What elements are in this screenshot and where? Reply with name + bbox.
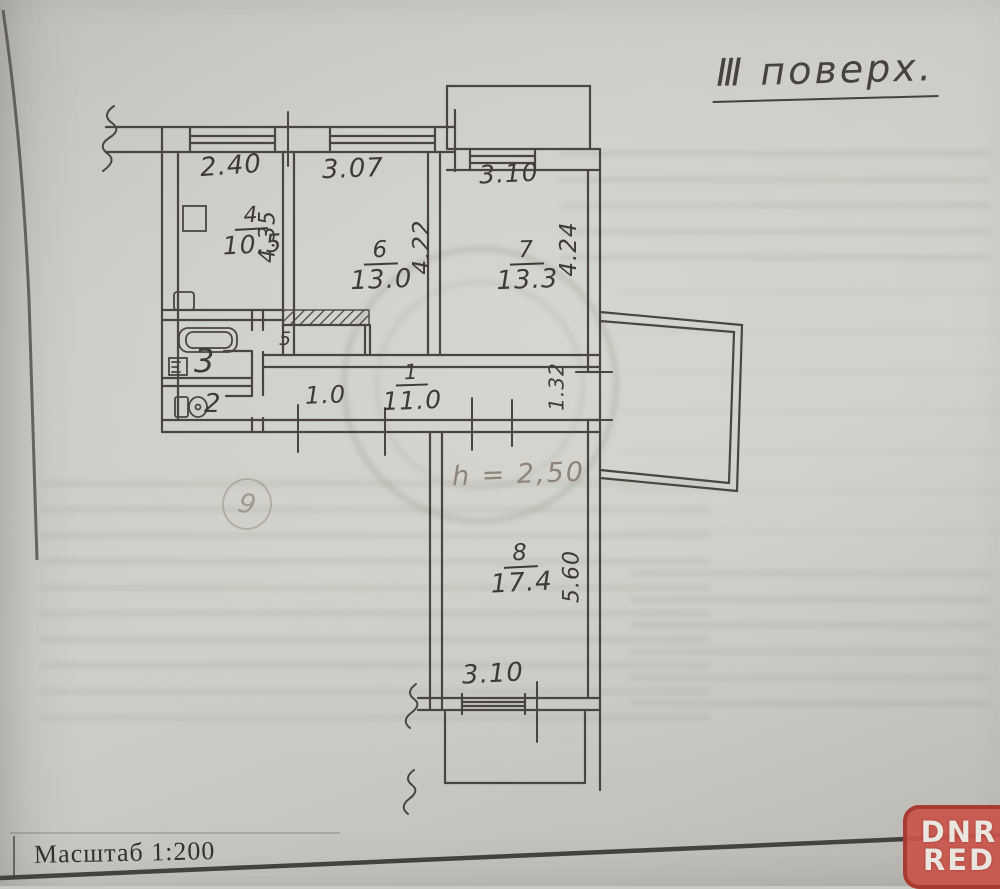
watermark-line2: RED xyxy=(923,847,995,875)
room-living7-label: 7 13.3 xyxy=(495,237,559,296)
room-living6-area: 13.0 xyxy=(350,264,413,295)
height-note: h = 2,50 xyxy=(452,459,586,492)
room-hall-number: 1 xyxy=(395,360,428,386)
room-8-number: 8 xyxy=(503,540,538,569)
window-kitchen xyxy=(190,127,275,152)
dim-kitchen-depth: 4.35 xyxy=(256,207,279,267)
upper-balcony xyxy=(447,86,590,149)
dim-room8-width: 3.10 xyxy=(461,659,524,689)
wall-break-mark xyxy=(103,106,117,171)
dim-balcony-opening: 1.32 xyxy=(547,358,568,416)
room-8-area: 17.4 xyxy=(490,567,553,599)
wall-break-mark-2 xyxy=(406,684,418,728)
dimension-ticks xyxy=(288,112,612,742)
dim-room8-depth: 5.60 xyxy=(560,547,583,607)
dim-living7-depth: 4.24 xyxy=(557,218,581,280)
dim-kitchen-width: 2.40 xyxy=(199,151,263,183)
room-8-label: 8 17.4 xyxy=(489,539,554,599)
floor-plan-drawing xyxy=(0,0,1000,886)
toilet-icon xyxy=(175,397,207,417)
plan-walls xyxy=(103,86,742,814)
wall-break-mark-3 xyxy=(404,770,416,814)
room-living6-label: 6 13.0 xyxy=(349,237,413,296)
scale-label: Масштаб 1:200 xyxy=(34,836,216,870)
room-living6-number: 6 xyxy=(363,237,398,265)
room-bathroom-number: 3 xyxy=(194,345,215,379)
room-hall-area: 11.0 xyxy=(382,385,443,415)
dim-living7-width: 3.10 xyxy=(478,159,539,188)
room-living7-number: 7 xyxy=(509,237,544,265)
page-curl-line xyxy=(3,10,37,560)
room-living7-area: 13.3 xyxy=(496,264,559,295)
room-wc-number: 2 xyxy=(204,391,222,418)
room-closet-number: 5 xyxy=(279,330,292,350)
room-hall-label: 1 11.0 xyxy=(381,360,442,415)
dim-living6-width: 3.07 xyxy=(322,155,385,184)
watermark-badge: DNR RED xyxy=(903,805,1000,889)
floor-title: Ⅲ поверх. xyxy=(711,45,938,103)
side-balcony xyxy=(600,312,742,491)
stove-icon xyxy=(183,206,206,231)
window-living6 xyxy=(330,127,435,152)
hatched-wall xyxy=(283,310,369,325)
dim-living6-depth: 4.22 xyxy=(410,217,434,277)
dim-hall-width: 1.0 xyxy=(305,382,347,409)
